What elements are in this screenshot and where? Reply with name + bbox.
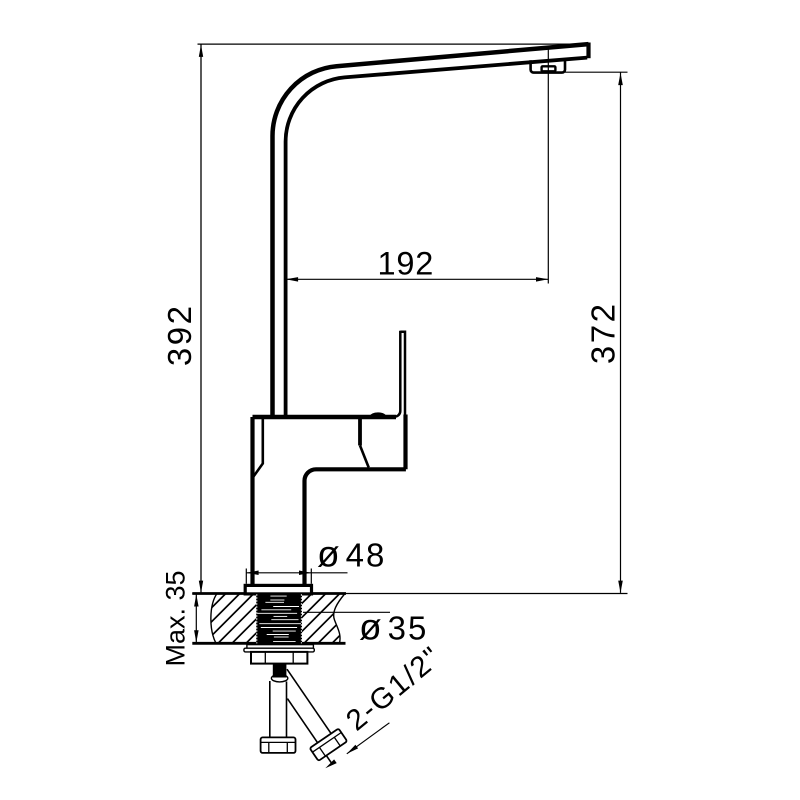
svg-text:192: 192: [377, 246, 434, 282]
svg-text:Max. 35: Max. 35: [161, 570, 191, 666]
svg-text:ø35: ø35: [359, 607, 428, 648]
svg-text:372: 372: [585, 302, 622, 365]
svg-text:ø48: ø48: [317, 534, 386, 575]
svg-text:392: 392: [161, 304, 198, 367]
